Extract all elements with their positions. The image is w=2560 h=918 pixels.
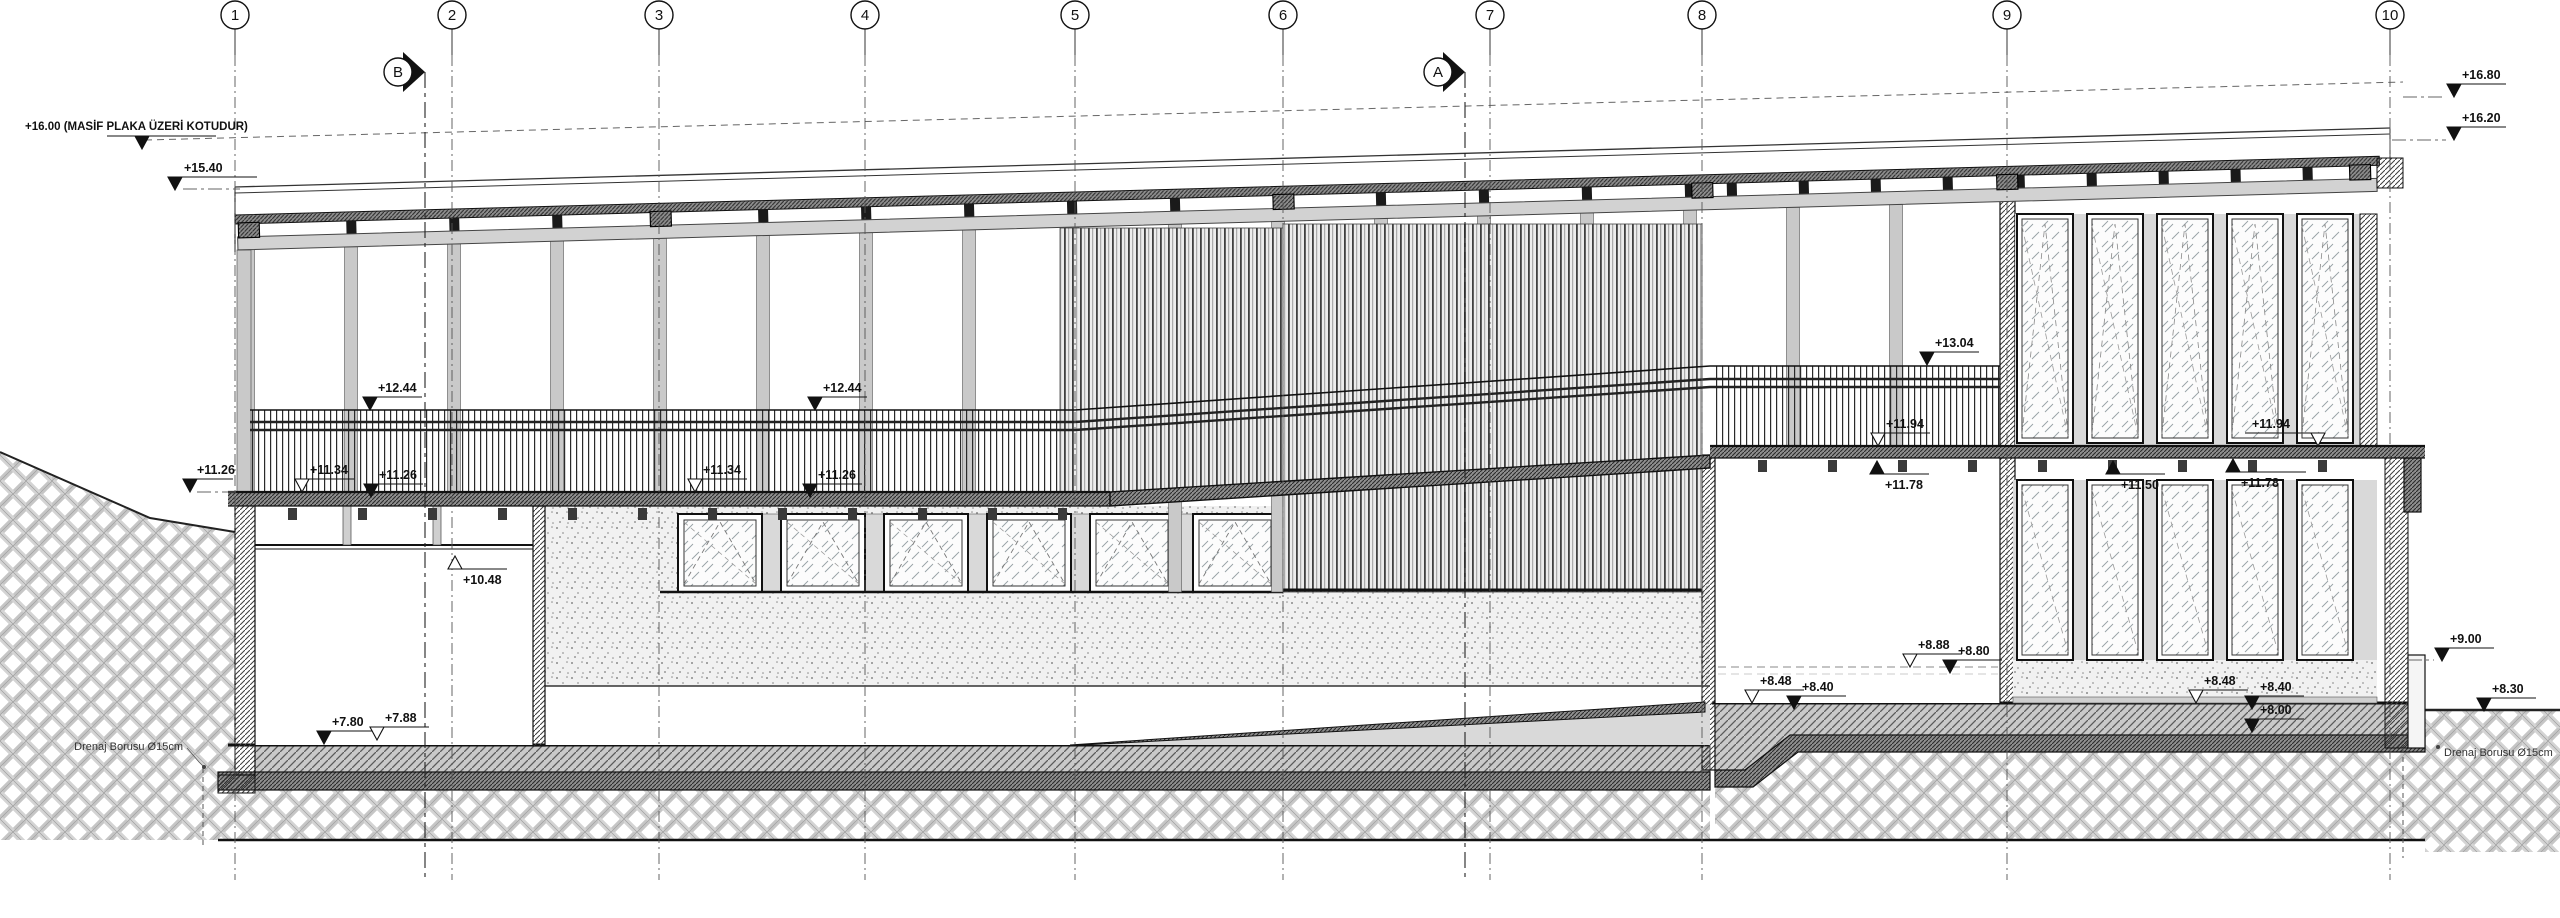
grid-bubble-label: 2: [448, 7, 456, 24]
section-canvas: Drenaj Borusu Ø15cm Drenaj Borusu Ø15cm …: [0, 0, 2560, 918]
roof-bearing-block: [2349, 165, 2370, 181]
window-glass: [2022, 219, 2068, 438]
level-label: +11.26: [379, 468, 417, 482]
ref-line-16.00-16.80: [145, 82, 2403, 140]
level-label: +12.44: [823, 381, 862, 395]
grid-bubble-label: 3: [655, 7, 663, 24]
level-label: +7.80: [332, 715, 364, 729]
elevation-marker: +16.20: [2447, 111, 2506, 140]
grid-bubble-label: 1: [231, 7, 239, 24]
terrain-right-hatch: [2425, 710, 2560, 852]
grid-bubble-label: 6: [1279, 7, 1287, 24]
footing-left: [218, 775, 255, 793]
level-label: +8.30: [2492, 682, 2524, 696]
joist-blocks-left: [260, 508, 1110, 520]
level-label: +11.78: [2241, 476, 2279, 490]
grid-bubble-label: 8: [1698, 7, 1706, 24]
right-outer-skin: [2408, 655, 2425, 748]
window-glass: [2232, 219, 2278, 438]
right-bay-windows: [2017, 214, 2353, 660]
level-label: +11.78: [1885, 478, 1923, 492]
grid-bubble-label: 7: [1486, 7, 1494, 24]
wall-interior-left: [533, 506, 545, 746]
level-label: +8.80: [1958, 644, 1990, 658]
level-label: +15.40: [184, 161, 223, 175]
window-mullion: [762, 514, 781, 592]
level-label: +9.00: [2450, 632, 2482, 646]
section-bubble-label: B: [393, 64, 403, 81]
window-glass: [2302, 485, 2348, 655]
elevation-marker: +8.30: [2477, 682, 2536, 711]
level-label: +16.00 (MASİF PLAKA ÜZERİ KOTUDUR): [25, 120, 248, 133]
level-label: +11.50: [2121, 478, 2159, 492]
roof-bearing-block: [1273, 194, 1294, 210]
floor-band-left: [228, 492, 1110, 506]
level-triangle-filled: [183, 479, 197, 492]
level-label: +8.40: [2260, 680, 2292, 694]
joist-blocks-mid: [1715, 460, 2000, 472]
level-label: +8.48: [2204, 674, 2236, 688]
level-label: +11.94: [1886, 417, 1924, 431]
slat-screen-a: [1060, 228, 1283, 494]
level-triangle-filled: [363, 397, 377, 410]
window-glass: [2162, 219, 2208, 438]
architectural-section-drawing: Drenaj Borusu Ø15cm Drenaj Borusu Ø15cm …: [0, 0, 2560, 918]
wall-grid1: [235, 492, 255, 775]
window-glass: [2022, 485, 2068, 655]
wall-right-upper: [2360, 214, 2377, 446]
level-label: +11.26: [818, 468, 856, 482]
grid-bubble-label: 4: [861, 7, 869, 24]
level-label: +11.94: [2252, 417, 2290, 431]
grid-bubble-label: 10: [2382, 7, 2399, 24]
slab-left: [255, 745, 1710, 772]
window-glass: [2162, 485, 2208, 655]
section-bubble-label: A: [1433, 64, 1443, 81]
level-triangle-filled: [808, 397, 822, 410]
drain-label-right: Drenaj Borusu Ø15cm: [2444, 747, 2553, 759]
column-grid1: [237, 250, 251, 492]
window-mullion: [968, 514, 987, 592]
level-label: +16.80: [2462, 68, 2501, 82]
window-mullion: [1071, 514, 1090, 592]
level-label: +11.34: [310, 463, 348, 477]
slat-screen-b: [1283, 224, 1702, 592]
level-label: +8.00: [2260, 703, 2292, 717]
level-triangle-filled: [168, 177, 182, 190]
roof-bearing-block: [238, 222, 259, 238]
level-triangle-filled: [135, 136, 149, 149]
window-glass: [2302, 219, 2348, 438]
level-label: +13.04: [1935, 336, 1974, 350]
level-label: +16.20: [2462, 111, 2501, 125]
level-triangle-filled: [2447, 127, 2461, 140]
level-label: +10.48: [463, 573, 502, 587]
level-triangle-filled: [1920, 352, 1934, 365]
elevation-marker: +12.44: [363, 381, 422, 410]
drain-dot-right: [2436, 745, 2440, 749]
floor-band-right: [1710, 446, 2425, 458]
ground-under-right: [1715, 752, 2425, 840]
terrain-left-hatch: [0, 452, 235, 840]
level-label: +11.26: [197, 463, 235, 477]
ground-under-left: [218, 790, 1710, 840]
level-label: +7.88: [385, 711, 417, 725]
window-mullion: [865, 514, 884, 592]
roof-bearing-block: [650, 211, 671, 227]
elevation-marker: +11.26: [183, 463, 235, 492]
level-label: +8.40: [1802, 680, 1834, 694]
lower-window-row: [678, 514, 1277, 592]
elevation-marker: +15.40: [168, 161, 257, 190]
elevation-marker: +12.44: [808, 381, 867, 410]
level-triangle-filled: [2435, 648, 2449, 661]
grid-bubble-label: 5: [1071, 7, 1079, 24]
drain-label-left: Drenaj Borusu Ø15cm: [74, 741, 183, 753]
elevation-marker: +13.04: [1920, 336, 1979, 365]
elevation-marker: +16.80: [2447, 68, 2506, 97]
level-label: +12.44: [378, 381, 417, 395]
level-label: +11.34: [703, 463, 741, 477]
right-edge-block: [2404, 458, 2421, 512]
drain-dot-left: [202, 765, 206, 769]
elevation-marker: +16.00 (MASİF PLAKA ÜZERİ KOTUDUR): [25, 120, 248, 149]
level-label: +8.48: [1760, 674, 1792, 688]
grid-bubble-label: 9: [2003, 7, 2011, 24]
level-triangle-filled: [2447, 84, 2461, 97]
window-glass: [2232, 485, 2278, 655]
elevation-marker: +9.00: [2435, 632, 2494, 661]
window-glass: [2092, 219, 2138, 438]
window-glass: [2092, 485, 2138, 655]
base-band-left: [218, 772, 1710, 790]
level-label: +8.88: [1918, 638, 1950, 652]
joist-blocks-right: [2013, 460, 2377, 472]
